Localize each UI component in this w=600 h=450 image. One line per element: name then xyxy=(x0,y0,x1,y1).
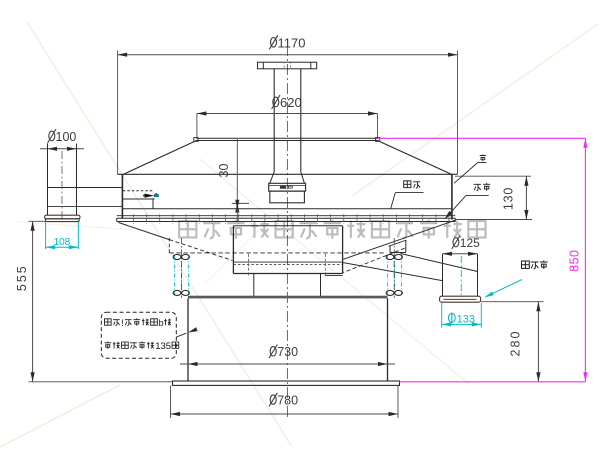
svg-text:135: 135 xyxy=(155,341,171,352)
svg-text:100: 100 xyxy=(56,130,77,144)
svg-text:125: 125 xyxy=(460,236,480,250)
svg-text:1170: 1170 xyxy=(278,35,306,50)
svg-text:108: 108 xyxy=(54,237,71,248)
svg-text:30: 30 xyxy=(217,164,231,178)
svg-text:780: 780 xyxy=(277,394,298,408)
svg-text:620: 620 xyxy=(280,95,302,110)
svg-text:280: 280 xyxy=(509,330,523,357)
svg-text:130: 130 xyxy=(502,187,516,210)
svg-text:555: 555 xyxy=(15,264,29,291)
svg-text:b: b xyxy=(159,318,164,328)
svg-text:730: 730 xyxy=(277,345,298,359)
svg-text:133: 133 xyxy=(457,314,475,326)
svg-text:850: 850 xyxy=(568,250,582,272)
svg-text:!: ! xyxy=(121,318,124,328)
